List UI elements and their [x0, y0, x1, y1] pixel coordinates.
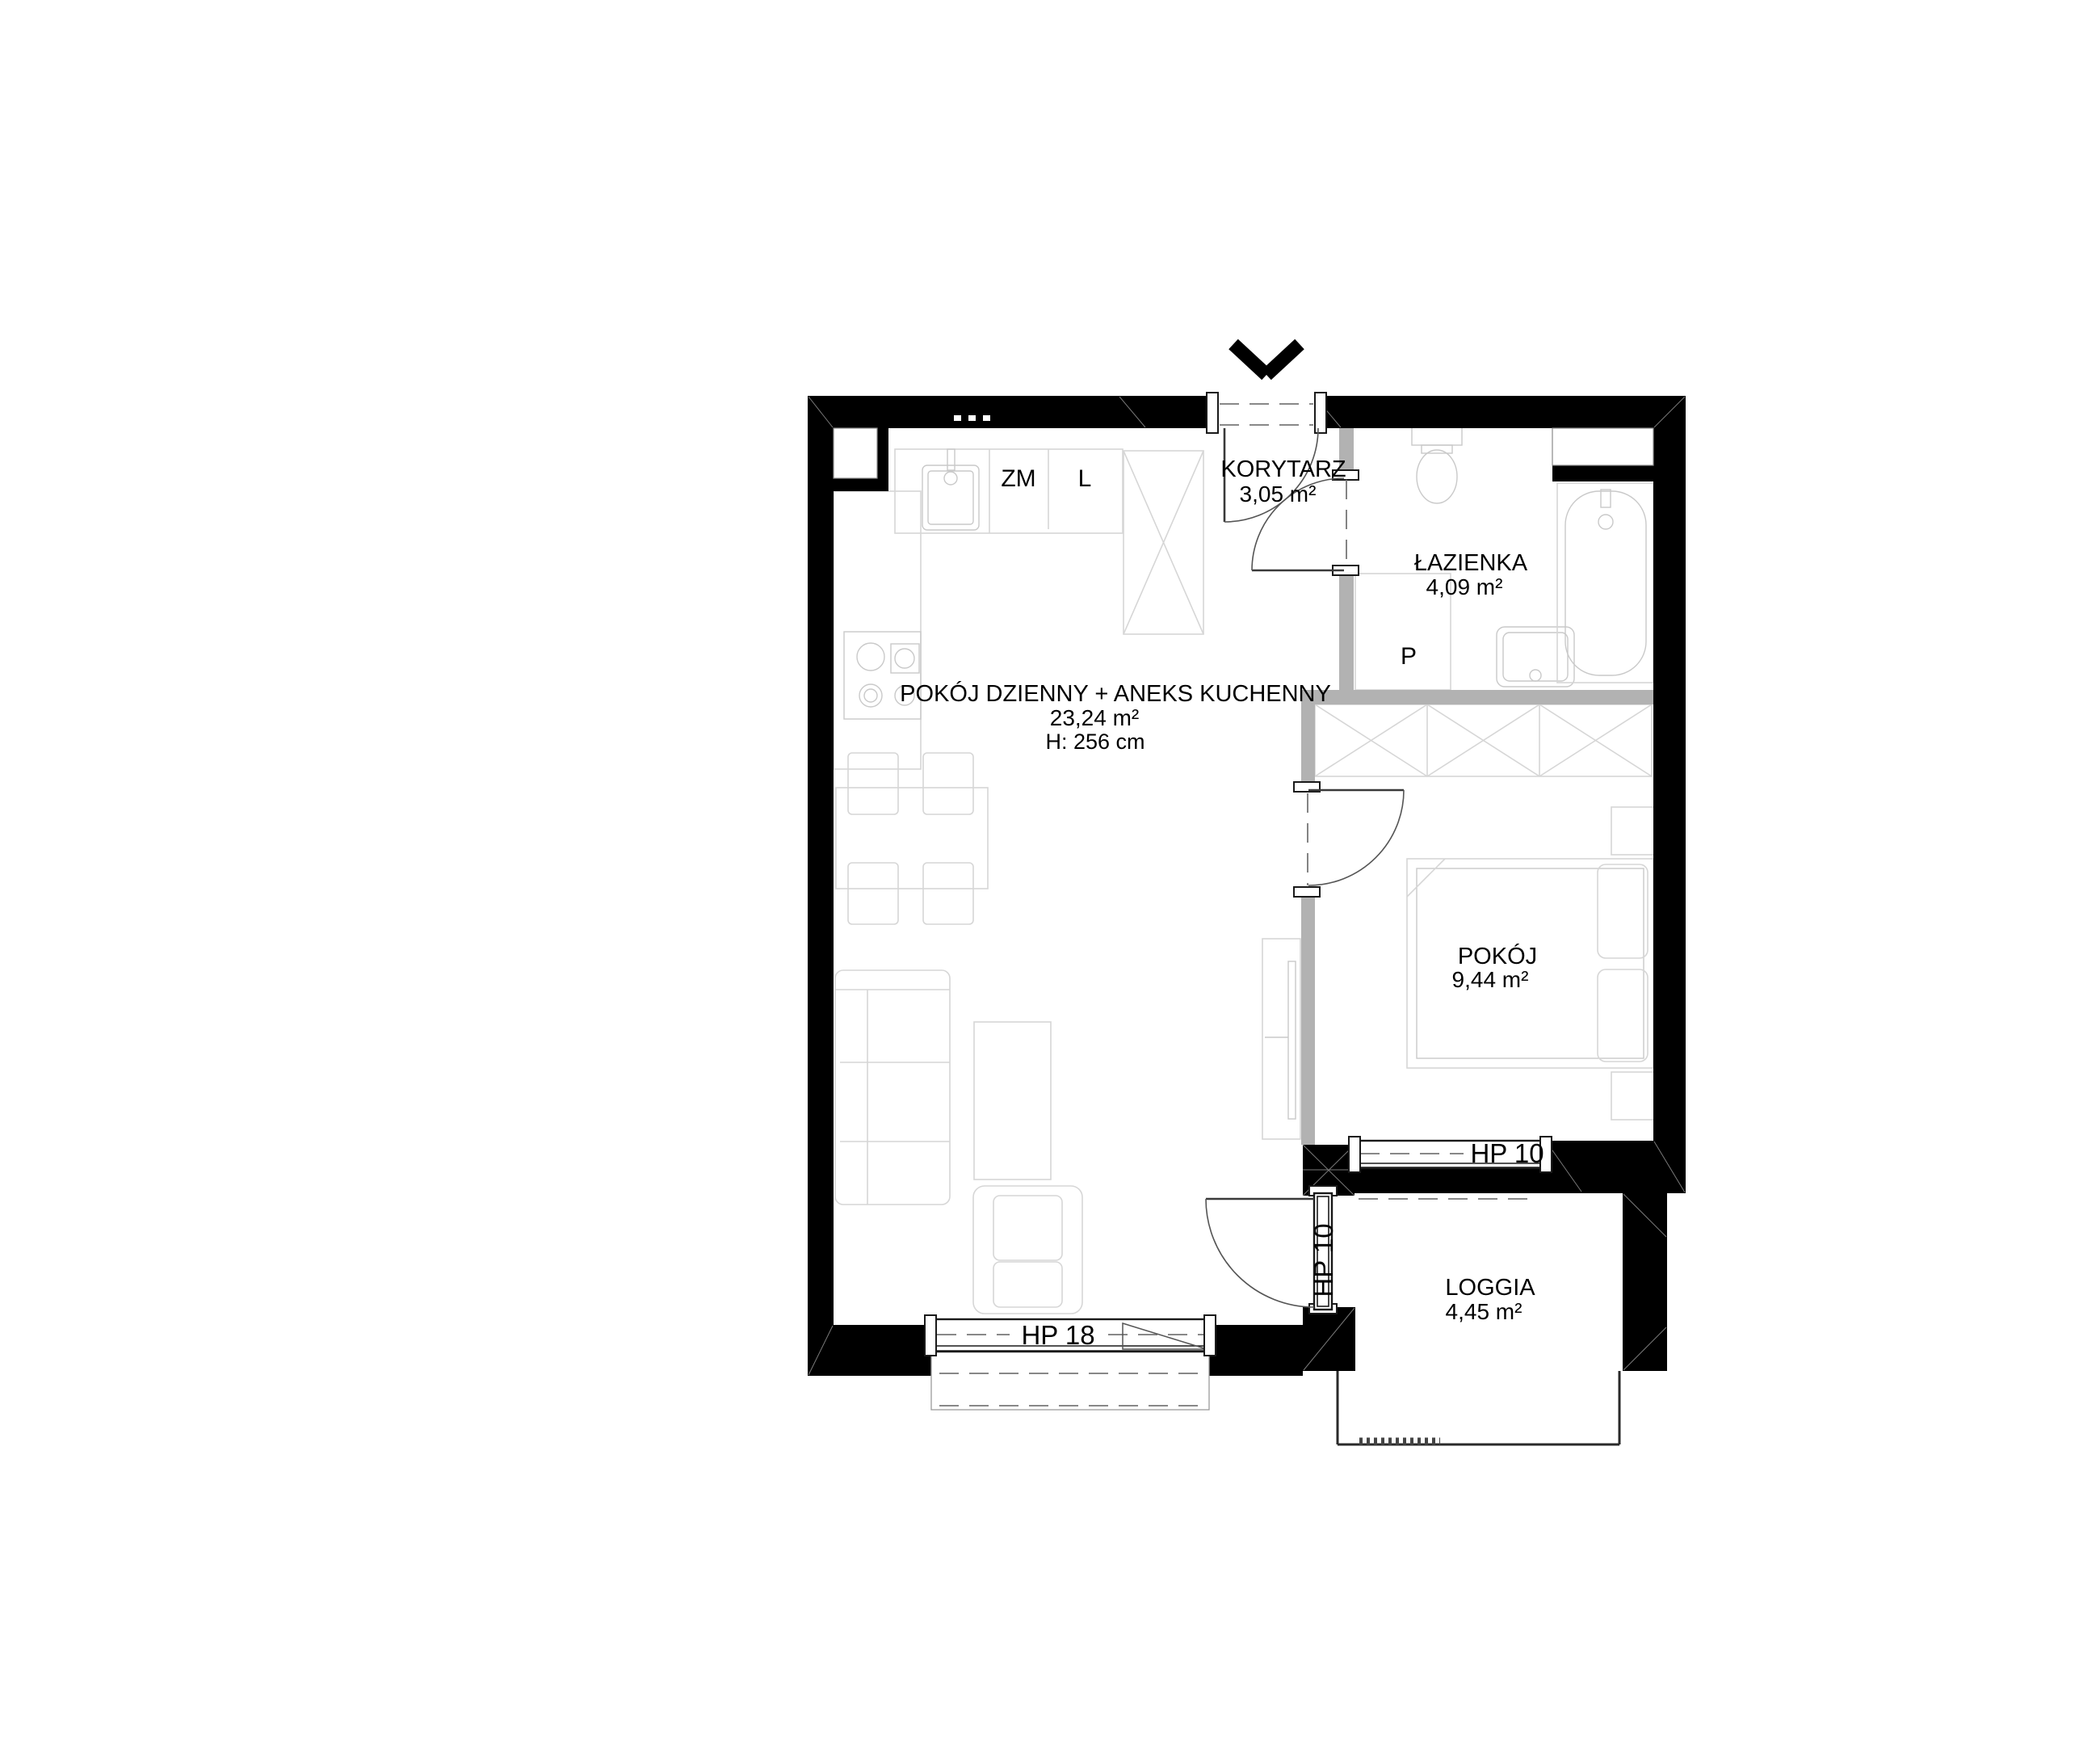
window-hp10-label: HP 10 [1470, 1138, 1543, 1168]
room-label-bathroom: ŁAZIENKA 4,09 m² [1414, 550, 1528, 599]
washing-machine-label: P [1401, 643, 1417, 670]
wardrobe [1315, 704, 1652, 776]
bathroom-area: 4,09 m² [1426, 574, 1503, 599]
living-height: H: 256 cm [1045, 730, 1144, 754]
window-hp10-bedroom: HP 10 [1349, 1137, 1552, 1172]
bedroom-name: POKÓJ [1458, 943, 1537, 969]
armchair [973, 1186, 1082, 1314]
sofa [835, 970, 950, 1205]
room-label-corridor: KORYTARZ 3,05 m² [1220, 456, 1346, 507]
toilet-icon [1412, 423, 1462, 503]
vent-marks [954, 415, 990, 421]
balcony-door: HP 10 [1206, 1186, 1338, 1314]
pillow [1598, 864, 1648, 958]
window-hp18: HP 18 [925, 1315, 1216, 1410]
tv-icon [1288, 961, 1296, 1119]
pillow [1598, 969, 1648, 1062]
bathtub-icon [1557, 483, 1653, 683]
coffee-table [974, 1022, 1051, 1179]
bathroom-sink-icon [1497, 627, 1574, 687]
kitchen-sink-icon [922, 449, 979, 530]
chair [923, 863, 973, 924]
loggia-name: LOGGIA [1445, 1275, 1535, 1301]
living-name: POKÓJ DZIENNY + ANEKS KUCHENNY [900, 680, 1331, 707]
tall-cabinet-icon [1123, 451, 1203, 634]
room-label-loggia: LOGGIA 4,45 m² [1445, 1275, 1535, 1324]
dishwasher-label: ZM [1001, 465, 1035, 492]
balcony-door-label: HP 10 [1308, 1223, 1338, 1297]
floor-plan: HP 10 HP 18 HP 10 POKÓJ DZIENNY + ANEKS … [0, 0, 2100, 1745]
nightstand [1611, 807, 1655, 855]
bedroom-door [1294, 782, 1404, 897]
wall-niche [1552, 428, 1653, 465]
living-area: 23,24 m² [1050, 705, 1140, 730]
nightstand [1611, 1072, 1655, 1120]
corridor-area: 3,05 m² [1240, 481, 1317, 507]
fridge-label: L [1078, 465, 1092, 492]
chair [923, 753, 973, 814]
chair [848, 753, 898, 814]
wall-joints [808, 397, 1685, 1375]
outer-walls [808, 396, 1686, 1376]
dining-set [836, 753, 988, 924]
wall-niche [834, 428, 877, 478]
chair [848, 863, 898, 924]
bathroom-name: ŁAZIENKA [1414, 550, 1528, 576]
partition-walls [1301, 428, 1653, 1145]
room-label-living: POKÓJ DZIENNY + ANEKS KUCHENNY 23,24 m² … [900, 680, 1331, 754]
entrance-arrow-icon [1233, 344, 1300, 375]
bedroom-area: 9,44 m² [1452, 967, 1529, 992]
dining-table [836, 788, 988, 889]
loggia-area: 4,45 m² [1446, 1299, 1522, 1324]
window-hp18-label: HP 18 [1021, 1320, 1094, 1350]
blanket-fold [1407, 859, 1445, 897]
room-label-bedroom: POKÓJ 9,44 m² [1452, 943, 1538, 992]
corridor-name: KORYTARZ [1220, 456, 1346, 482]
tv-stand [1262, 939, 1300, 1139]
kitchen-area [834, 449, 1203, 769]
